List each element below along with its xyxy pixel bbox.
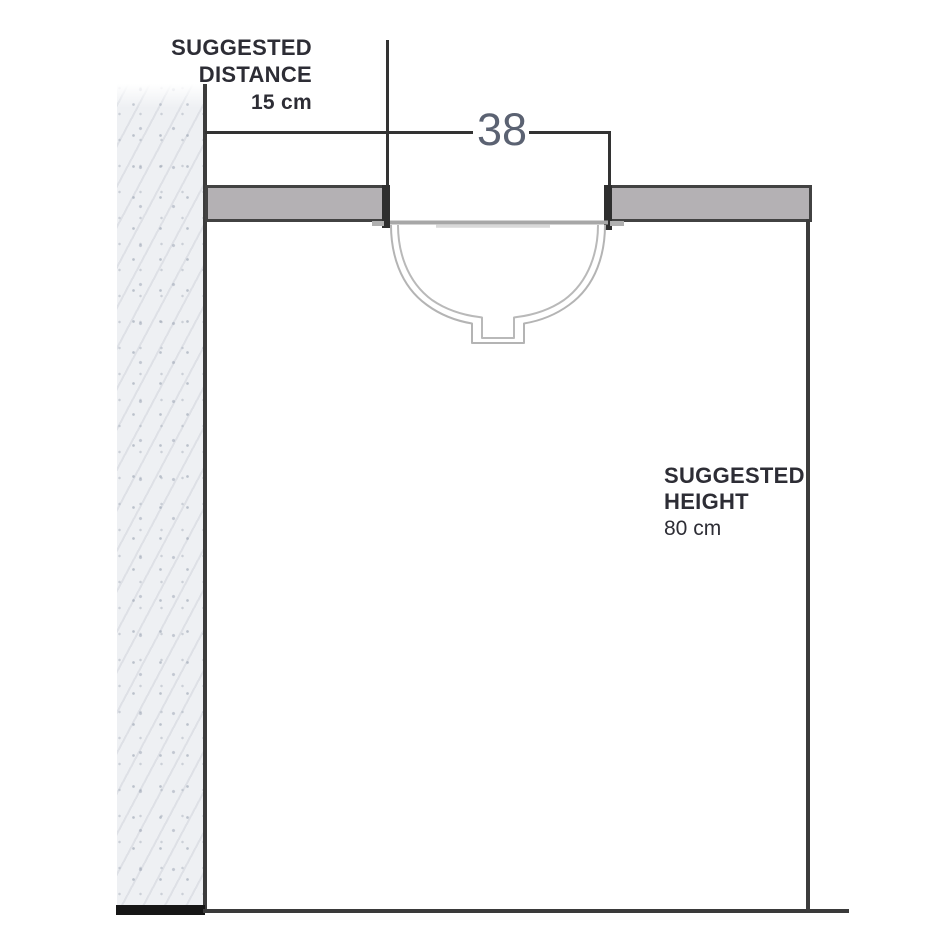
width-dimension-right-tick xyxy=(608,131,611,188)
distance-label-line2: DISTANCE xyxy=(140,61,312,88)
installation-diagram: 38 SUGGESTED DISTANCE 15 cm SUGGESTED HE… xyxy=(0,0,950,950)
distance-label-line1: SUGGESTED xyxy=(140,34,312,61)
wall-section xyxy=(117,84,204,911)
distance-dimension-vertical-line xyxy=(386,40,389,188)
washbasin-bowl-icon xyxy=(378,216,622,356)
countertop-right-segment xyxy=(606,185,812,222)
wall-baseboard xyxy=(116,905,205,915)
distance-label-block: SUGGESTED DISTANCE 15 cm xyxy=(140,34,312,116)
height-label-line2: HEIGHT xyxy=(664,489,824,515)
distance-value: 15 cm xyxy=(140,89,312,116)
floor-line xyxy=(203,909,849,913)
height-label-block: SUGGESTED HEIGHT 80 cm xyxy=(664,463,824,542)
countertop-left-segment xyxy=(205,185,387,222)
dimension-line-left-segment xyxy=(205,131,473,134)
height-reference-line xyxy=(806,219,810,911)
basin-outer-wall xyxy=(391,225,605,343)
basin-inner-wall xyxy=(398,225,598,338)
height-label-line1: SUGGESTED xyxy=(664,463,824,489)
height-value: 80 cm xyxy=(664,516,824,542)
width-dimension-value: 38 xyxy=(468,103,536,157)
dimension-line-right-segment xyxy=(529,131,611,134)
